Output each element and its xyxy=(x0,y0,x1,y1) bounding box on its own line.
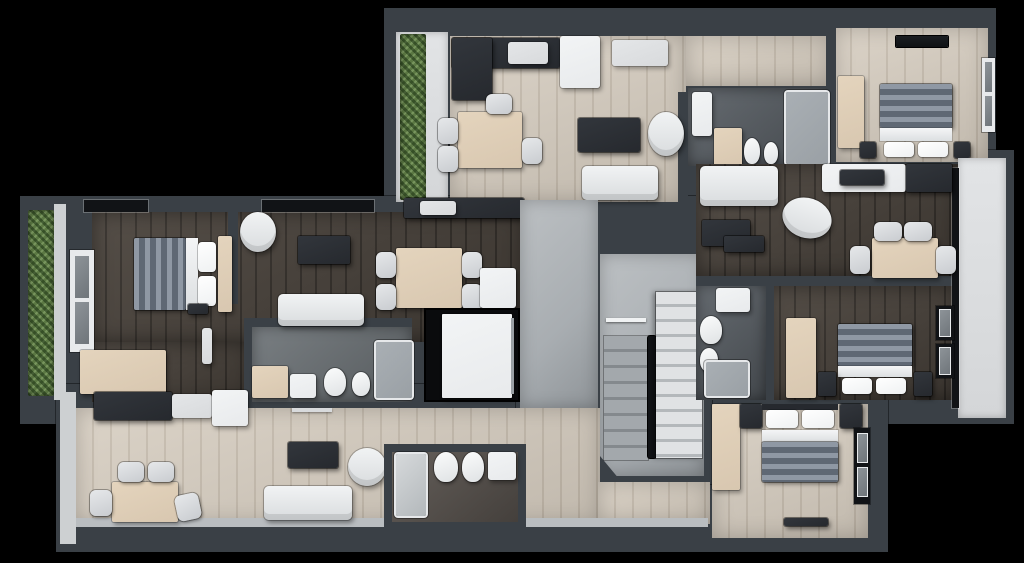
top-bed-sheet xyxy=(880,128,952,141)
right-chair-2 xyxy=(904,222,932,241)
right-kitchen-sink xyxy=(840,170,884,185)
bottom-bath-bidet xyxy=(462,452,484,482)
hedge-planter-top xyxy=(400,34,426,200)
top-bed-blanket xyxy=(880,84,952,128)
bottom-bed-pillow-1 xyxy=(766,410,798,428)
bottom-bedroom-window-pane1 xyxy=(858,434,867,462)
bottom-sofa xyxy=(264,486,352,520)
bottom-kitchen-counter xyxy=(94,392,172,420)
bottom-nightstand-2 xyxy=(840,404,862,428)
left-dresser xyxy=(80,350,166,394)
right-chair-4 xyxy=(936,246,956,274)
left-chair-1 xyxy=(376,252,396,278)
right-bedroom-window-2-pane xyxy=(940,348,950,374)
top-tv-stand xyxy=(578,118,640,152)
left-fridge xyxy=(480,268,516,308)
top-ceiling-vent xyxy=(896,36,948,47)
left-bedroom-window-pane1 xyxy=(75,256,89,298)
bottom-towel-rail xyxy=(292,408,332,412)
bottom-bed-sheet xyxy=(762,430,838,442)
left-bed-sheet xyxy=(186,238,198,310)
bottom-tv-stand xyxy=(288,442,338,468)
right-bedroom-wardrobe xyxy=(786,318,816,398)
bottom-dining-table xyxy=(112,482,178,522)
left-bed-blanket xyxy=(134,238,186,310)
left-armchair xyxy=(240,212,276,252)
left-chair-2 xyxy=(376,284,396,310)
right-bed-pillow-2 xyxy=(876,378,906,394)
right-bath-toilet xyxy=(700,316,722,344)
top-armchair xyxy=(648,112,684,156)
balcony-left-parapet xyxy=(54,204,66,400)
bottom-chair-3 xyxy=(90,490,112,516)
bottom-bed-pillow-2 xyxy=(802,410,834,428)
left-bedroom-window-pane2 xyxy=(75,302,89,344)
right-chair-1 xyxy=(874,222,902,241)
left-bed-pillow-1 xyxy=(198,242,216,272)
bottom-west-wall-face xyxy=(60,392,76,544)
left-kitchen-sink xyxy=(420,201,456,215)
top-bath-toilet xyxy=(744,138,760,164)
top-bed-pillow-2 xyxy=(918,142,948,157)
bottom-fridge xyxy=(212,390,248,426)
left-door-leaf xyxy=(202,328,212,364)
top-bath-washbasin xyxy=(692,92,712,136)
hedge-planter-left xyxy=(28,210,54,396)
top-fridge xyxy=(560,36,600,88)
top-bedroom-window-pane xyxy=(985,62,992,92)
right-bath-washbasin xyxy=(716,288,750,312)
left-sofa xyxy=(278,294,364,326)
top-kitchen-cabinet xyxy=(452,38,492,100)
right-bed-sheet xyxy=(838,366,912,377)
left-bed-headboard-wardrobe xyxy=(218,236,232,312)
top-sofa xyxy=(582,166,658,200)
right-bedroom-window-1-pane xyxy=(940,310,950,336)
top-chair-3 xyxy=(438,146,458,172)
bottom-chair-2 xyxy=(148,462,174,482)
right-bath-shower xyxy=(706,362,748,396)
bottom-nightstand-1 xyxy=(740,404,762,428)
core-corridor-floor xyxy=(520,200,598,408)
stairs-gap xyxy=(648,336,656,458)
top-bath-cabinet xyxy=(714,128,742,166)
top-bedroom-window-pane2 xyxy=(985,96,992,126)
right-chair-3 xyxy=(850,246,870,274)
right-kitchen-appliance xyxy=(906,164,952,192)
top-chair-4 xyxy=(522,138,542,164)
top-bedroom-wardrobe xyxy=(838,76,864,148)
bottom-bath-shower xyxy=(396,454,426,516)
stairs-flight-down xyxy=(604,336,648,460)
left-tv-bench xyxy=(298,236,350,264)
bottom-door-threshold xyxy=(784,518,828,526)
left-topwall-window-2 xyxy=(262,200,374,212)
top-kitchen-sink xyxy=(508,42,548,64)
left-bath-bidet xyxy=(352,372,370,396)
bottom-kitchen-sink xyxy=(172,394,212,418)
bottom-bedroom-window-pane2 xyxy=(858,468,867,496)
left-wall-tv xyxy=(188,304,208,314)
bottom-chair-4 xyxy=(174,492,203,522)
right-bed-pillow-1 xyxy=(842,378,872,394)
left-bath-cabinet xyxy=(252,366,288,398)
top-bed-pillow-1 xyxy=(884,142,914,157)
bottom-bed-blanket xyxy=(762,442,838,482)
bottom-armchair xyxy=(348,448,386,486)
floor-plan-render xyxy=(0,0,1024,563)
right-dining-table xyxy=(872,238,938,278)
top-dining-table xyxy=(458,112,522,168)
right-balcony-floor xyxy=(958,158,1006,418)
left-chair-4 xyxy=(462,284,482,310)
top-hallway-floor xyxy=(686,36,832,86)
bottom-chair-1 xyxy=(118,462,144,482)
left-chair-3 xyxy=(462,252,482,278)
right-nightstand-1 xyxy=(818,372,836,396)
left-topwall-window-1 xyxy=(84,200,148,212)
partition-right-bath-bed xyxy=(766,286,774,400)
top-nightstand-1 xyxy=(860,142,876,158)
top-chair-2 xyxy=(438,118,458,144)
top-bath-shower xyxy=(786,92,828,164)
left-bath-toilet xyxy=(324,368,346,396)
top-sideboard xyxy=(612,40,668,66)
top-chair-1 xyxy=(486,94,512,114)
left-bath-shower xyxy=(376,342,412,398)
elevator-door-line xyxy=(511,318,514,394)
left-bed-pillow-2 xyxy=(198,276,216,306)
right-sofa xyxy=(700,166,778,206)
top-nightstand-2 xyxy=(954,142,970,158)
right-tv-bench xyxy=(724,236,764,252)
bottom-bath-toilet xyxy=(434,452,458,482)
right-nightstand-2 xyxy=(914,372,932,396)
left-dining-table xyxy=(396,248,462,308)
top-bath-bidet xyxy=(764,142,778,164)
elevator-cabin xyxy=(442,314,512,398)
left-bath-washer xyxy=(290,374,316,398)
bottom-bedroom-wardrobe xyxy=(712,404,740,490)
bottom-bath-vanity xyxy=(488,452,516,480)
stairs-handrail xyxy=(606,318,646,322)
right-bed-blanket xyxy=(838,324,912,366)
